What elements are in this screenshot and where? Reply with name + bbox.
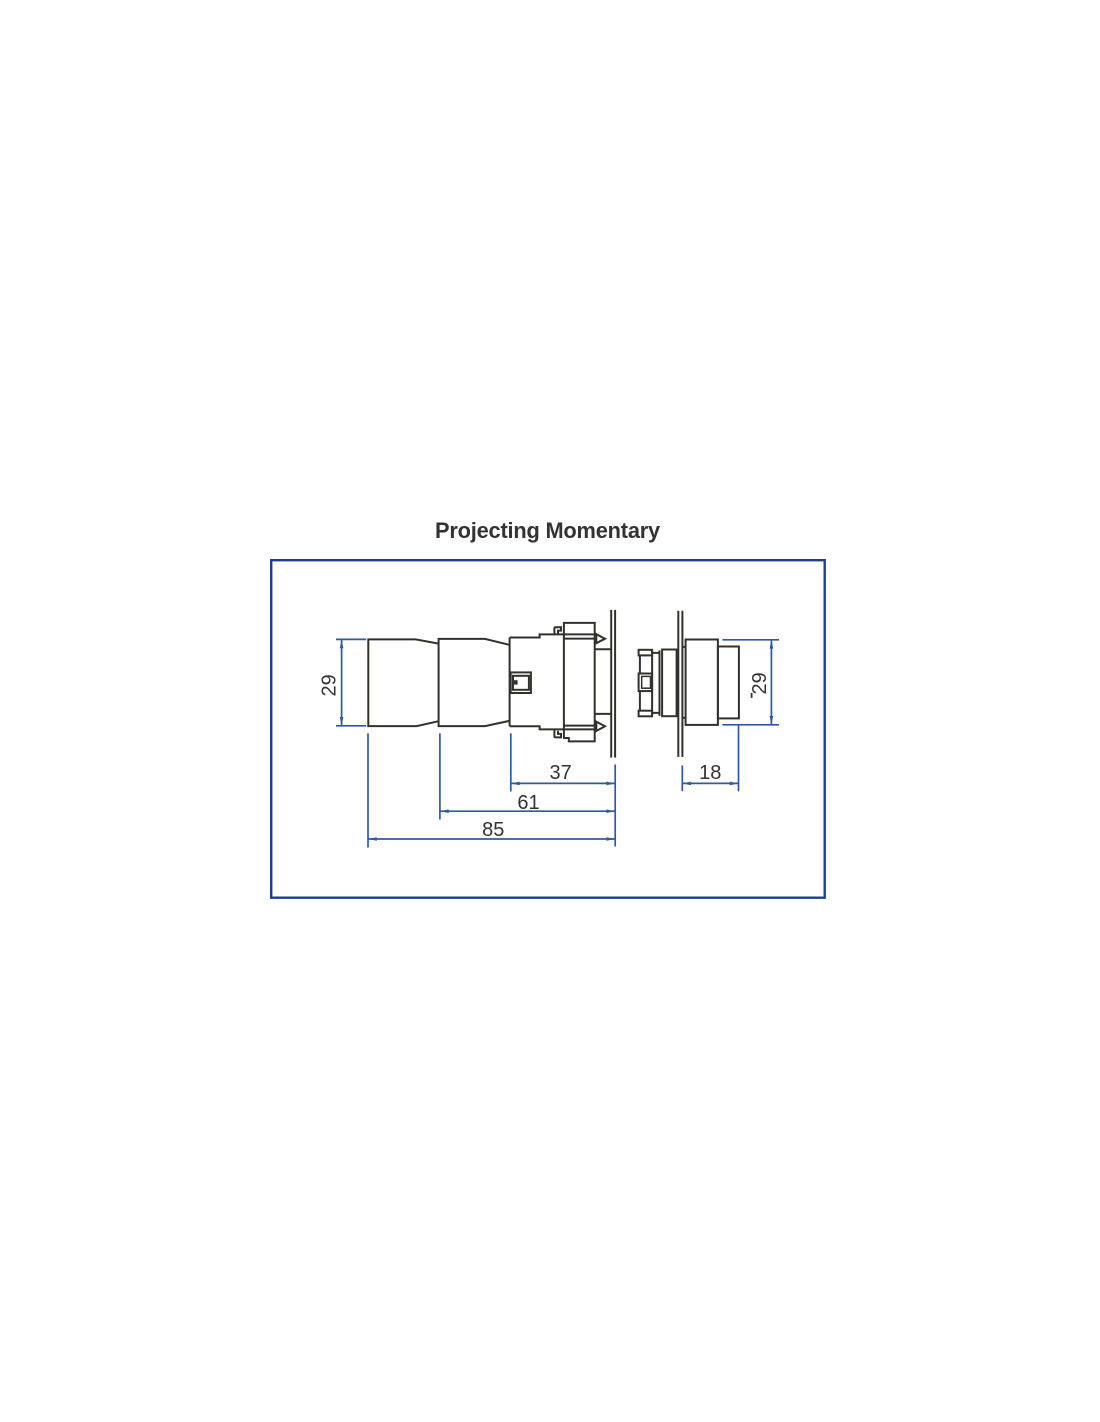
svg-text:Projecting Momentary: Projecting Momentary xyxy=(435,518,660,543)
svg-text:85: 85 xyxy=(482,819,504,841)
svg-text:29: 29 xyxy=(318,674,340,696)
svg-text:61: 61 xyxy=(517,792,539,814)
svg-text:18: 18 xyxy=(699,762,721,784)
svg-text:29: 29 xyxy=(749,672,771,694)
svg-text:37: 37 xyxy=(549,762,571,784)
